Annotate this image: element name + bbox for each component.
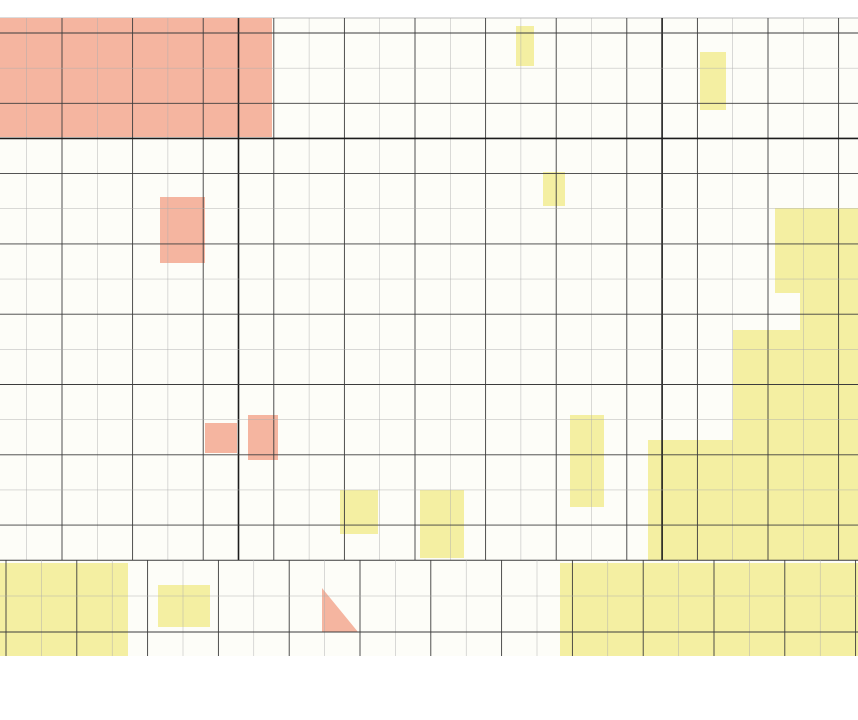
yellow-mid-3 [340,490,378,534]
salmon-parcel-leask-nw [205,423,237,453]
yellow-grazing-west [648,440,733,560]
yellow-east-2 [800,293,858,333]
yellow-bottom-right [560,563,858,656]
yellow-top-center [516,26,534,66]
yellow-mid-1 [570,415,604,507]
yellow-top-right [700,52,726,110]
salmon-parcel-sec25 [160,197,205,263]
rm-cadastral-map[interactable] [0,0,858,720]
yellow-bottom-small [158,585,210,627]
yellow-lake-edge [543,172,565,206]
yellow-east-1 [775,208,858,293]
yellow-bottom-left [0,563,128,656]
yellow-mid-2 [420,490,464,558]
map-viewer [0,0,858,720]
pink-block-nw [0,18,272,137]
